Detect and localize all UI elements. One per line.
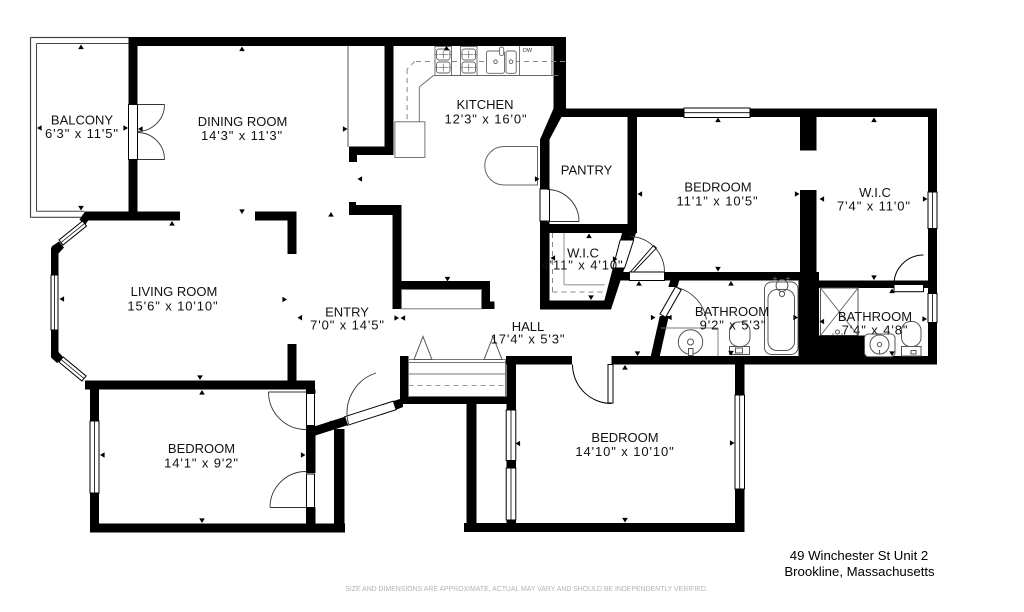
svg-text:LIVING ROOM: LIVING ROOM bbox=[131, 284, 218, 299]
svg-text:9'2" x 5'3": 9'2" x 5'3" bbox=[700, 318, 767, 333]
svg-text:49 Winchester St Unit 2: 49 Winchester St Unit 2 bbox=[790, 548, 929, 563]
svg-text:BEDROOM: BEDROOM bbox=[591, 430, 658, 445]
svg-text:14'10" x 10'10": 14'10" x 10'10" bbox=[575, 444, 674, 459]
svg-text:PANTRY: PANTRY bbox=[561, 163, 613, 178]
svg-text:7'4" x 4'8": 7'4" x 4'8" bbox=[842, 323, 909, 338]
svg-text:BEDROOM: BEDROOM bbox=[684, 180, 751, 195]
svg-text:Brookline, Massachusetts: Brookline, Massachusetts bbox=[784, 564, 935, 579]
svg-text:7'0" x 14'5": 7'0" x 14'5" bbox=[310, 318, 385, 333]
svg-text:14'1" x 9'2": 14'1" x 9'2" bbox=[164, 456, 239, 471]
svg-text:14'3" x 11'3": 14'3" x 11'3" bbox=[201, 128, 283, 143]
svg-text:6'3" x 11'5": 6'3" x 11'5" bbox=[45, 126, 119, 141]
svg-text:7'4" x 11'0": 7'4" x 11'0" bbox=[837, 199, 911, 214]
svg-text:KITCHEN: KITCHEN bbox=[456, 97, 513, 112]
svg-text:DINING ROOM: DINING ROOM bbox=[198, 114, 288, 129]
svg-text:BEDROOM: BEDROOM bbox=[168, 441, 235, 456]
svg-text:17'4" x 5'3": 17'4" x 5'3" bbox=[491, 332, 566, 347]
svg-text:DW: DW bbox=[523, 48, 533, 54]
svg-text:SIZE AND DIMENSIONS ARE APPROX: SIZE AND DIMENSIONS ARE APPROXIMATE, ACT… bbox=[345, 586, 708, 593]
svg-text:12'3" x 16'0": 12'3" x 16'0" bbox=[445, 112, 528, 127]
svg-text:15'6" x 10'10": 15'6" x 10'10" bbox=[127, 299, 218, 314]
svg-text:11'1" x 10'5": 11'1" x 10'5" bbox=[676, 194, 758, 209]
